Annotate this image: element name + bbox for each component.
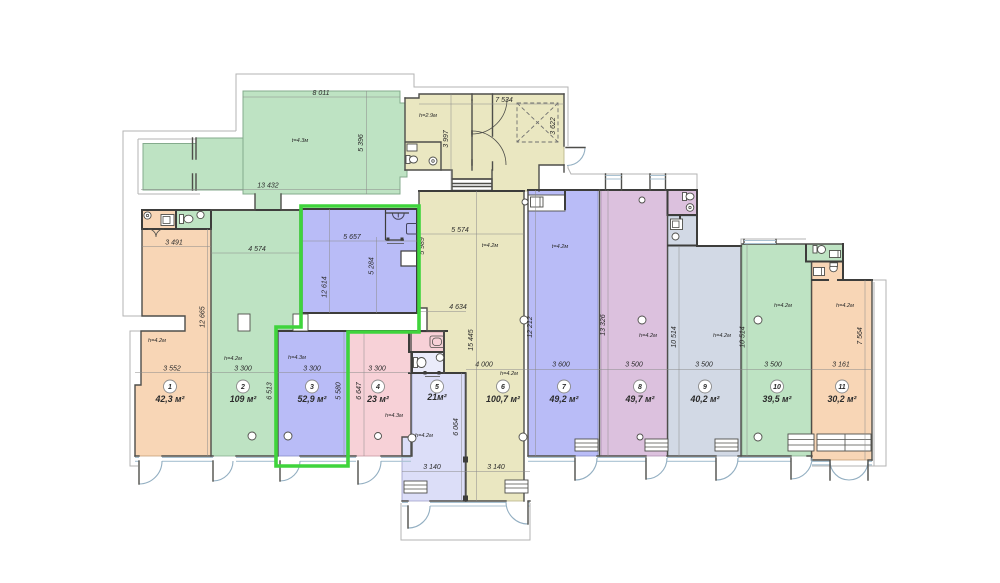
svg-text:11: 11: [838, 384, 845, 391]
svg-text:39,5 м²: 39,5 м²: [762, 394, 792, 404]
svg-text:h=4.2м: h=4.2м: [148, 338, 166, 344]
svg-text:8 011: 8 011: [313, 90, 330, 97]
svg-text:100,7 м²: 100,7 м²: [486, 394, 521, 404]
svg-text:8: 8: [638, 384, 642, 391]
svg-text:3 491: 3 491: [165, 240, 183, 247]
svg-text:t=4.3м: t=4.3м: [292, 138, 309, 144]
svg-text:5 574: 5 574: [451, 227, 469, 234]
svg-text:13 326: 13 326: [600, 314, 607, 336]
svg-text:2: 2: [240, 384, 245, 391]
svg-text:6 647: 6 647: [356, 381, 363, 400]
svg-text:12 614: 12 614: [322, 276, 329, 298]
svg-text:10 514: 10 514: [740, 326, 747, 348]
svg-text:3 140: 3 140: [487, 464, 505, 471]
svg-text:3 300: 3 300: [303, 366, 321, 373]
svg-text:5 284: 5 284: [369, 257, 376, 275]
svg-text:30,2 м²: 30,2 м²: [827, 394, 857, 404]
svg-text:12 212: 12 212: [527, 316, 534, 338]
svg-text:h=4.2м: h=4.2м: [774, 303, 792, 309]
svg-text:t=4.2м: t=4.2м: [552, 244, 569, 250]
svg-text:3 622: 3 622: [550, 117, 557, 135]
svg-text:3 500: 3 500: [625, 362, 643, 369]
svg-text:4: 4: [375, 384, 380, 391]
svg-text:9: 9: [703, 384, 707, 391]
svg-text:6 064: 6 064: [453, 418, 460, 436]
svg-text:42,3 м²: 42,3 м²: [154, 394, 185, 404]
svg-text:3 140: 3 140: [423, 464, 441, 471]
svg-text:4 634: 4 634: [449, 304, 467, 311]
svg-text:5 580: 5 580: [336, 382, 343, 400]
svg-text:1: 1: [168, 384, 172, 391]
svg-text:3: 3: [310, 384, 314, 391]
svg-text:h=4.2м: h=4.2м: [713, 333, 731, 339]
svg-text:h=4.2м: h=4.2м: [836, 303, 854, 309]
svg-text:3 300: 3 300: [368, 366, 386, 373]
svg-text:4 000: 4 000: [475, 362, 493, 369]
svg-text:5 657: 5 657: [343, 234, 362, 241]
svg-text:21м²: 21м²: [426, 392, 447, 402]
svg-text:23 м²: 23 м²: [366, 394, 390, 404]
svg-text:49,2 м²: 49,2 м²: [548, 394, 579, 404]
svg-text:h=4.2м: h=4.2м: [224, 356, 242, 362]
svg-text:10: 10: [773, 384, 781, 391]
svg-text:3 997: 3 997: [443, 129, 450, 148]
svg-text:13 432: 13 432: [257, 183, 279, 190]
svg-text:40,2 м²: 40,2 м²: [689, 394, 720, 404]
svg-text:10 514: 10 514: [671, 326, 678, 348]
svg-text:5 396: 5 396: [358, 134, 365, 152]
svg-text:3 500: 3 500: [764, 362, 782, 369]
svg-text:h=4.2м: h=4.2м: [500, 371, 518, 377]
svg-text:7 534: 7 534: [495, 97, 513, 104]
svg-text:5: 5: [435, 384, 439, 391]
svg-text:7 564: 7 564: [857, 327, 864, 345]
svg-text:h=2.9м: h=2.9м: [419, 113, 437, 119]
svg-text:49,7 м²: 49,7 м²: [624, 394, 655, 404]
svg-text:t=4.2м: t=4.2м: [482, 243, 499, 249]
svg-text:6 513: 6 513: [267, 382, 274, 400]
svg-text:12 665: 12 665: [200, 306, 207, 328]
svg-text:h=4.2м: h=4.2м: [639, 333, 657, 339]
svg-text:h=4.3м: h=4.3м: [385, 413, 403, 419]
svg-text:3 161: 3 161: [832, 362, 850, 369]
svg-text:4 574: 4 574: [248, 246, 266, 253]
svg-text:6: 6: [501, 384, 505, 391]
svg-text:3 300: 3 300: [234, 366, 252, 373]
svg-text:h=4.2м: h=4.2м: [415, 433, 433, 439]
svg-text:h=4.3м: h=4.3м: [288, 355, 306, 361]
svg-text:3 600: 3 600: [552, 362, 570, 369]
svg-text:52,9 м²: 52,9 м²: [297, 394, 327, 404]
svg-text:109 м²: 109 м²: [230, 394, 258, 404]
svg-text:3 552: 3 552: [163, 366, 181, 373]
svg-text:15 445: 15 445: [468, 329, 475, 351]
svg-text:3 500: 3 500: [695, 362, 713, 369]
